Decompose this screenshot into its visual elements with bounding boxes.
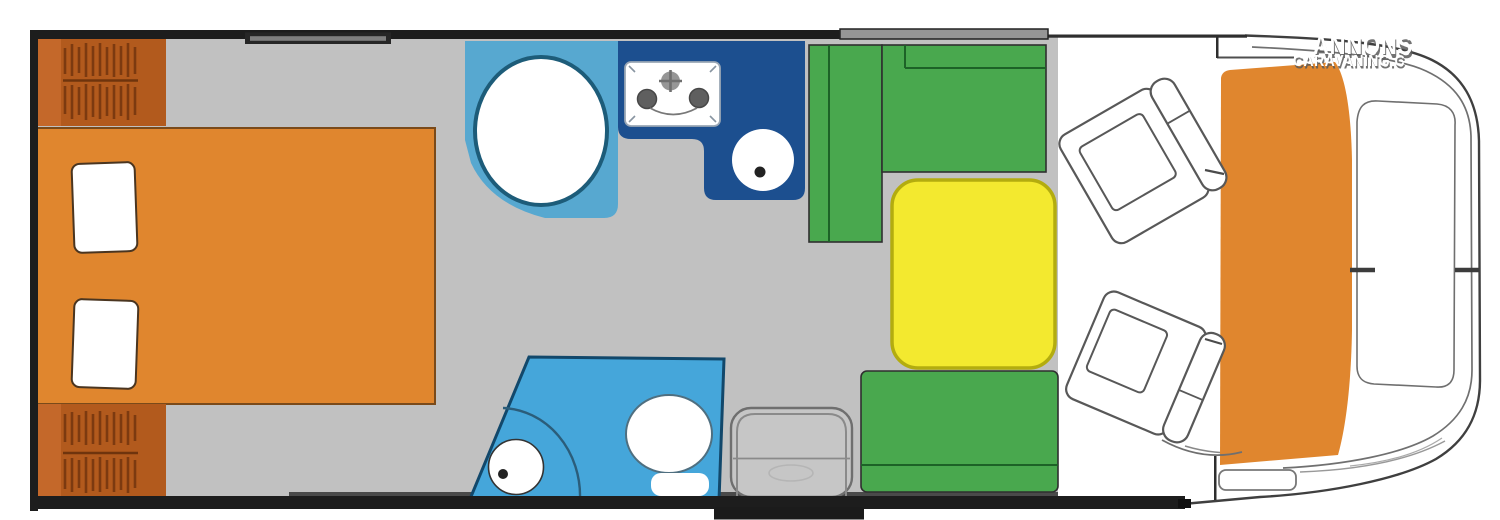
svg-text:CARAVANING.C: CARAVANING.C <box>1293 53 1405 70</box>
